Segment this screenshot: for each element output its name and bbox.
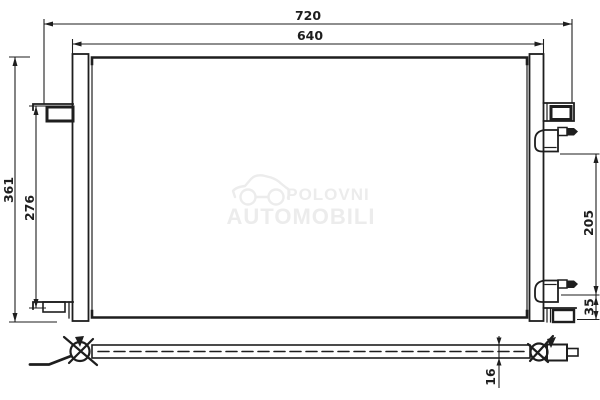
bottom-port-fitting xyxy=(535,280,567,302)
car-icon xyxy=(233,175,289,204)
bottom-view xyxy=(30,336,578,365)
condenser-technical-drawing-page: POLOVNI AUTOMOBILI xyxy=(0,0,600,400)
pipe-fitting-marks xyxy=(75,336,556,348)
dim-label-720: 720 xyxy=(295,8,321,23)
bottom-port-tip xyxy=(567,281,578,289)
right-bottom-bracket xyxy=(544,308,577,322)
dim-label-205: 205 xyxy=(581,210,596,236)
left-top-bracket xyxy=(33,104,73,121)
dim-label-16: 16 xyxy=(483,368,498,386)
condenser-technical-drawing: POLOVNI AUTOMOBILI xyxy=(0,0,600,400)
watermark-text: POLOVNI AUTOMOBILI xyxy=(227,185,376,229)
left-pipe-fitting xyxy=(30,337,97,365)
top-port-tip xyxy=(567,128,578,136)
watermark-line2: AUTOMOBILI xyxy=(227,204,376,229)
watermark: POLOVNI AUTOMOBILI xyxy=(227,175,376,229)
dim-label-640: 640 xyxy=(297,28,323,43)
left-bottom-bracket xyxy=(33,302,73,318)
top-port-fitting xyxy=(535,128,567,152)
dim-label-35: 35 xyxy=(582,298,597,315)
dim-label-361: 361 xyxy=(1,177,16,203)
left-tank xyxy=(73,54,89,321)
port-tip-marks xyxy=(567,128,578,288)
right-top-bracket xyxy=(544,103,575,121)
dim-label-276: 276 xyxy=(22,195,37,221)
watermark-line1: POLOVNI xyxy=(286,185,370,204)
